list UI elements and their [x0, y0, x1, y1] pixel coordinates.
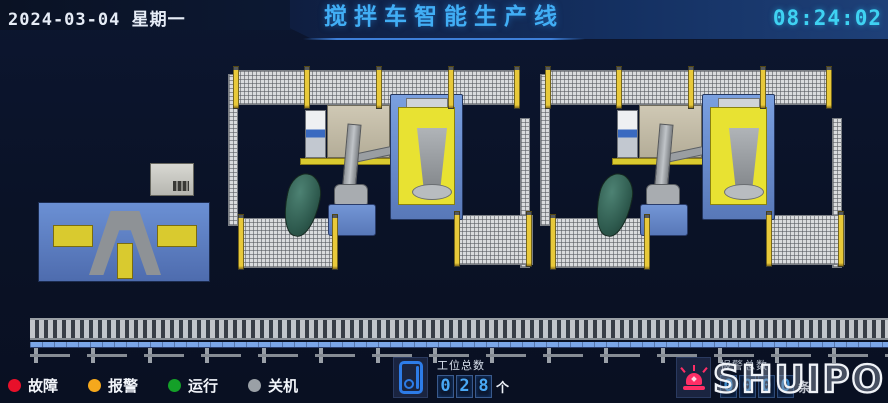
legend-item-running: 运行 [168, 375, 218, 396]
fence-post [332, 214, 338, 270]
status-dot [248, 379, 261, 392]
power-cabinet [305, 110, 326, 158]
clamp-right [157, 225, 197, 247]
title-underline [303, 38, 585, 40]
legend-label: 运行 [188, 375, 218, 396]
fence-post [545, 66, 551, 109]
fence-post [448, 66, 454, 109]
production-line-scene [0, 0, 888, 403]
alarm-light-icon [682, 365, 706, 391]
legend-label: 关机 [268, 375, 298, 396]
positioner-turntable [724, 184, 764, 200]
fence-post [644, 214, 650, 270]
safety-fence-bottom-right [769, 215, 845, 265]
fence-post [454, 211, 460, 267]
safety-fence-bottom-right [457, 215, 533, 265]
fence-post [514, 66, 520, 109]
station-count-unit: 个 [496, 377, 509, 396]
legend-label: 报警 [108, 375, 138, 396]
station-icon-tile [393, 357, 428, 398]
status-dot [8, 379, 21, 392]
robot-cell-2 [540, 56, 845, 274]
fence-post [826, 66, 832, 109]
clock-display: 08:24:02 [773, 6, 882, 30]
legend-item-fault: 故障 [8, 375, 58, 396]
hmi-dashboard: 2024-03-04 星期一 搅拌车智能生产线 08:24:02 [0, 0, 888, 403]
power-cabinet [617, 110, 638, 158]
fence-post [238, 214, 244, 270]
fence-post [550, 214, 556, 270]
fence-post [304, 66, 310, 109]
fence-post [376, 66, 382, 109]
legend-item-off: 关机 [248, 375, 298, 396]
alarm-icon-tile [676, 357, 711, 398]
positioner-turntable [412, 184, 452, 200]
fence-post [766, 211, 772, 267]
control-box [150, 163, 194, 196]
status-dot [88, 379, 101, 392]
station-counter-label: 工位总数 [437, 357, 509, 373]
clamp-left [53, 225, 93, 247]
legend-item-alarm: 报警 [88, 375, 138, 396]
fence-post [760, 66, 766, 109]
station-device-icon [399, 361, 423, 394]
fence-post [688, 66, 694, 109]
legend-label: 故障 [28, 375, 58, 396]
status-bar: 故障 报警 运行 关机 工位总数 028 个 [0, 357, 888, 403]
title-panel: 搅拌车智能生产线 [289, 0, 599, 41]
fence-post [233, 66, 239, 109]
status-dot [168, 379, 181, 392]
robot-cell-1 [228, 56, 533, 274]
digit: 8 [475, 375, 492, 398]
status-legend: 故障 报警 运行 关机 [8, 375, 298, 396]
date-display: 2024-03-04 星期一 [8, 5, 186, 30]
fixture-platform [38, 202, 210, 282]
fence-post [838, 211, 844, 267]
header: 2024-03-04 星期一 搅拌车智能生产线 08:24:02 [0, 0, 888, 30]
conveyor-rollers [30, 318, 888, 340]
station-counter: 工位总数 028 个 [393, 357, 509, 398]
station-count-digits: 028 [437, 375, 492, 398]
fence-post [616, 66, 622, 109]
digit: 2 [456, 375, 473, 398]
clamp-center [117, 243, 133, 279]
digit: 0 [437, 375, 454, 398]
page-title: 搅拌车智能生产线 [289, 0, 599, 33]
shuipo-logo: SHUIPO [713, 358, 885, 401]
fence-post [526, 211, 532, 267]
fixture-station [35, 160, 215, 285]
